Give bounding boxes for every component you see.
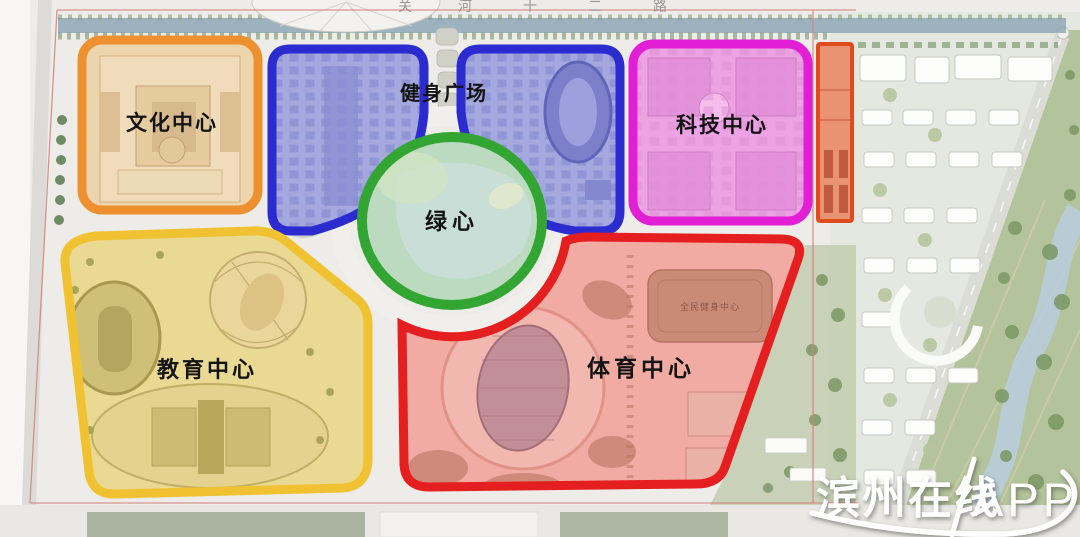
road-char: 二 xyxy=(588,0,602,14)
road-char: 十 xyxy=(523,0,537,14)
green-heart-label: 绿心 xyxy=(425,209,479,234)
planning-map-screenshot: 关 河 十 二 路 xyxy=(0,0,1080,537)
fitness-center-building-label: 全民健身中心 xyxy=(680,301,740,312)
road-char: 河 xyxy=(458,0,472,14)
culture-center-label: 文化中心 xyxy=(126,111,218,135)
zone-east-strip xyxy=(818,44,852,221)
park-building xyxy=(765,438,807,453)
fitness-left-building xyxy=(324,66,358,206)
sports-center-label: 体育中心 xyxy=(587,355,695,381)
watermark-suffix: APP xyxy=(972,473,1078,526)
tech-center-label: 科技中心 xyxy=(676,113,768,137)
master-plan-map: 关 河 十 二 路 xyxy=(0,0,1080,537)
education-center-label: 教育中心 xyxy=(157,357,257,382)
road-char: 关 xyxy=(398,0,412,14)
road-char: 路 xyxy=(653,0,667,14)
fitness-plaza-label: 健身广场 xyxy=(400,81,488,105)
